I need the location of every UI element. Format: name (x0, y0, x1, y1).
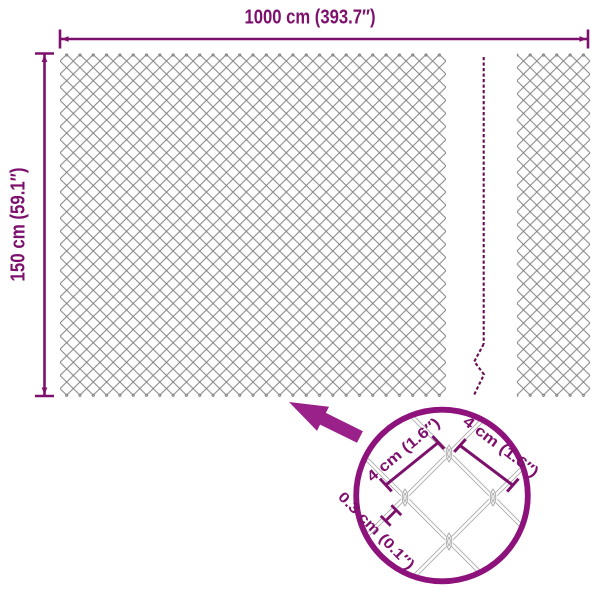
svg-text:1000 cm (393.7″): 1000 cm (393.7″) (245, 7, 376, 29)
svg-text:150 cm (59.1″): 150 cm (59.1″) (8, 168, 30, 282)
